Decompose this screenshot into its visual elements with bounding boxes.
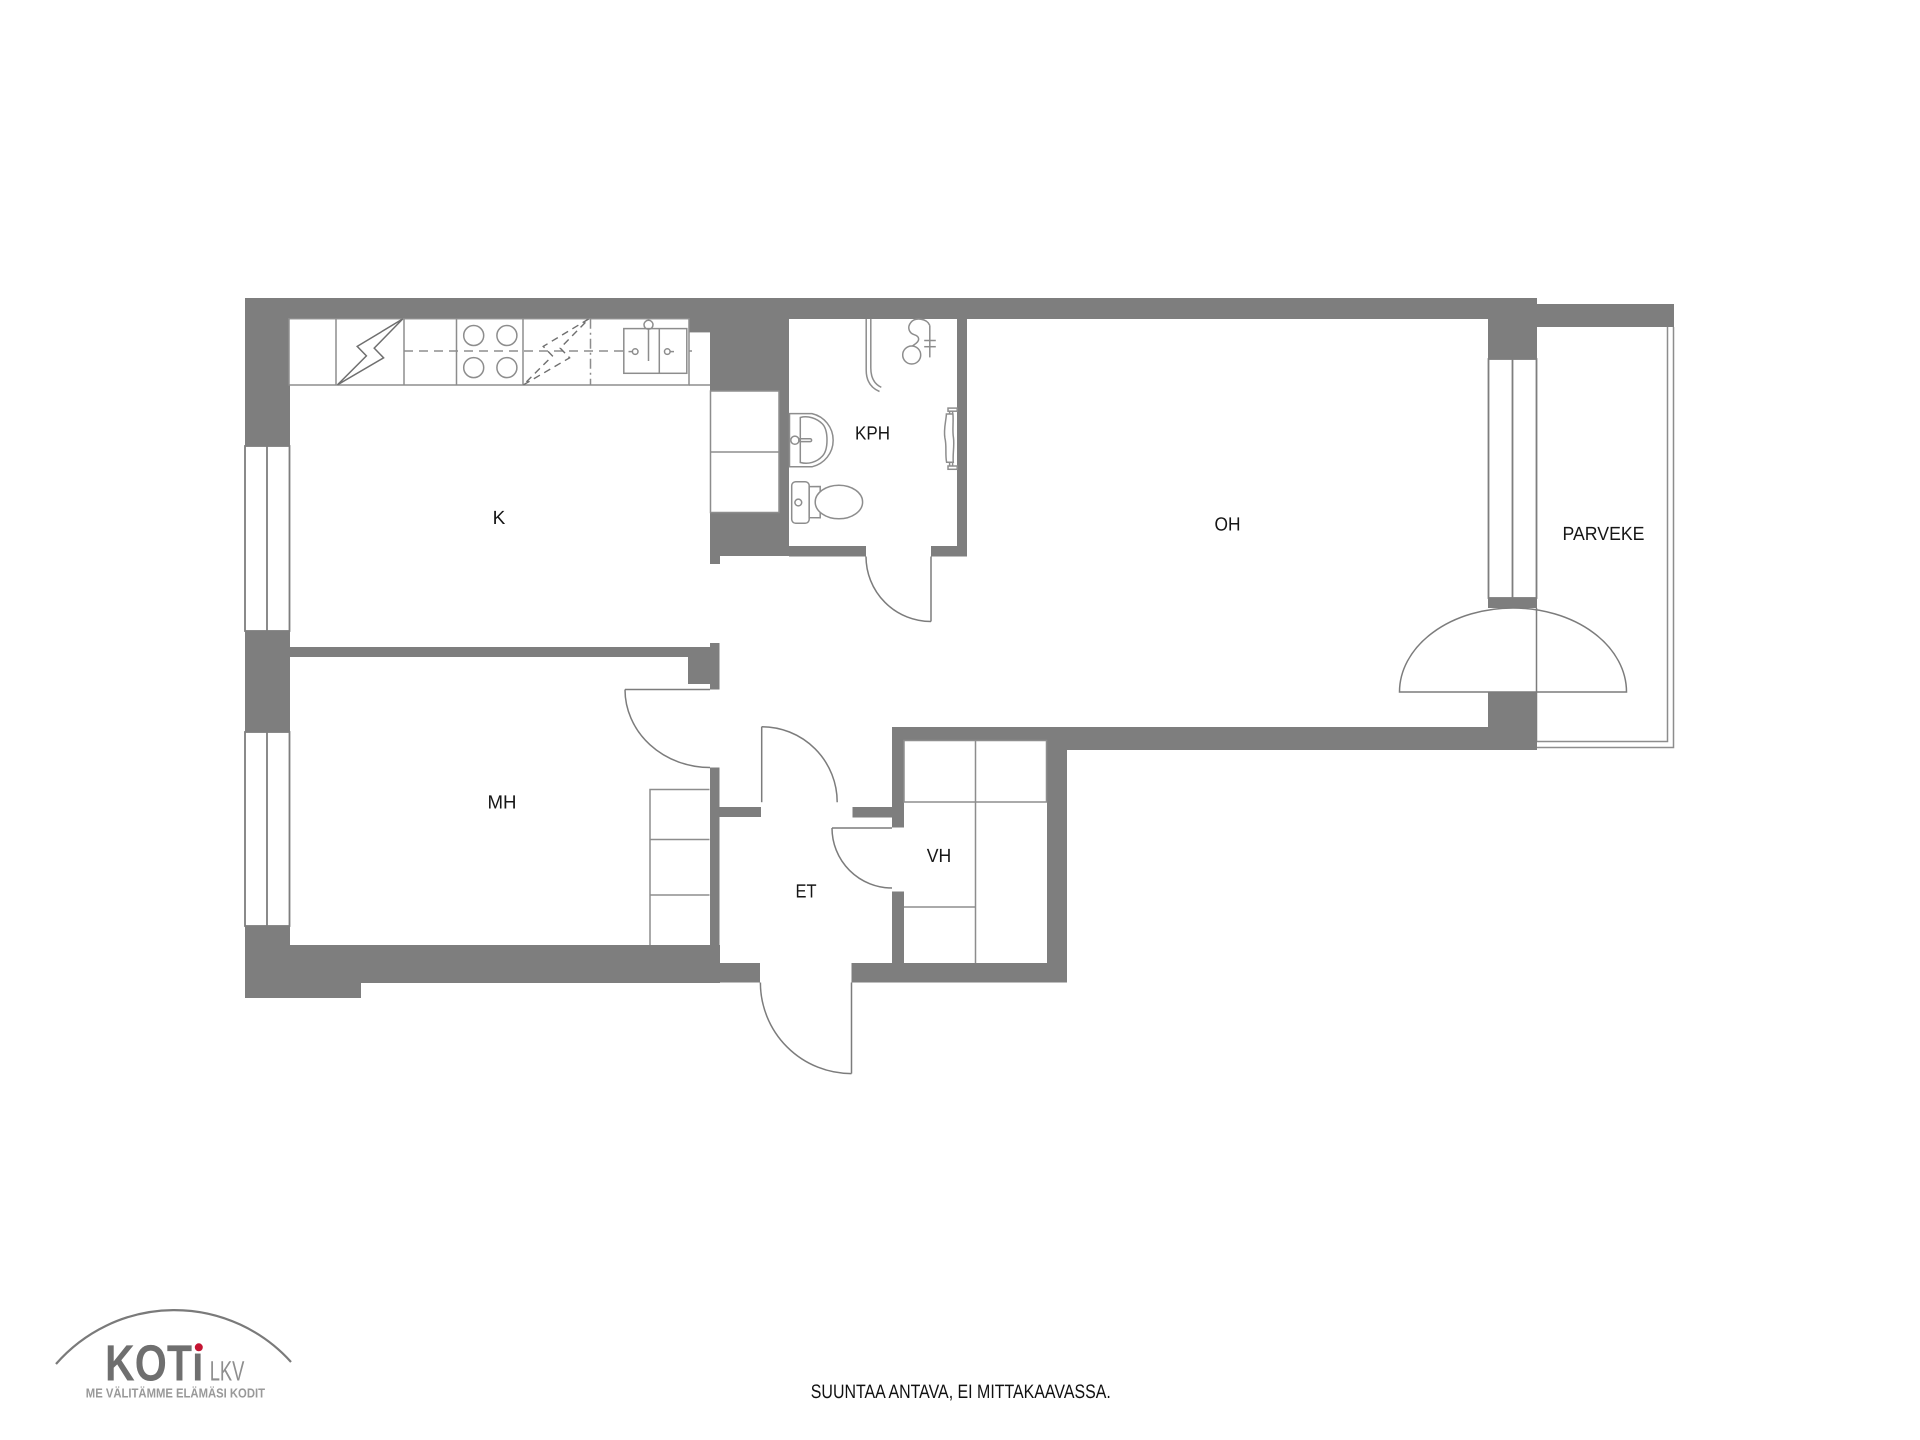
svg-text:ET: ET bbox=[796, 882, 817, 903]
svg-text:KOTı: KOTı bbox=[105, 1335, 204, 1392]
svg-text:VH: VH bbox=[927, 846, 952, 867]
svg-text:LKV: LKV bbox=[210, 1356, 245, 1387]
svg-text:KPH: KPH bbox=[855, 424, 890, 445]
svg-text:K: K bbox=[493, 508, 506, 529]
svg-text:ME VÄLITÄMME ELÄMÄSI KODIT: ME VÄLITÄMME ELÄMÄSI KODIT bbox=[86, 1386, 265, 1401]
svg-text:OH: OH bbox=[1215, 515, 1241, 536]
svg-text:MH: MH bbox=[488, 793, 517, 814]
svg-text:PARVEKE: PARVEKE bbox=[1563, 524, 1645, 545]
svg-text:SUUNTAA ANTAVA, EI MITTAKAAVAS: SUUNTAA ANTAVA, EI MITTAKAAVASSA. bbox=[811, 1381, 1111, 1403]
